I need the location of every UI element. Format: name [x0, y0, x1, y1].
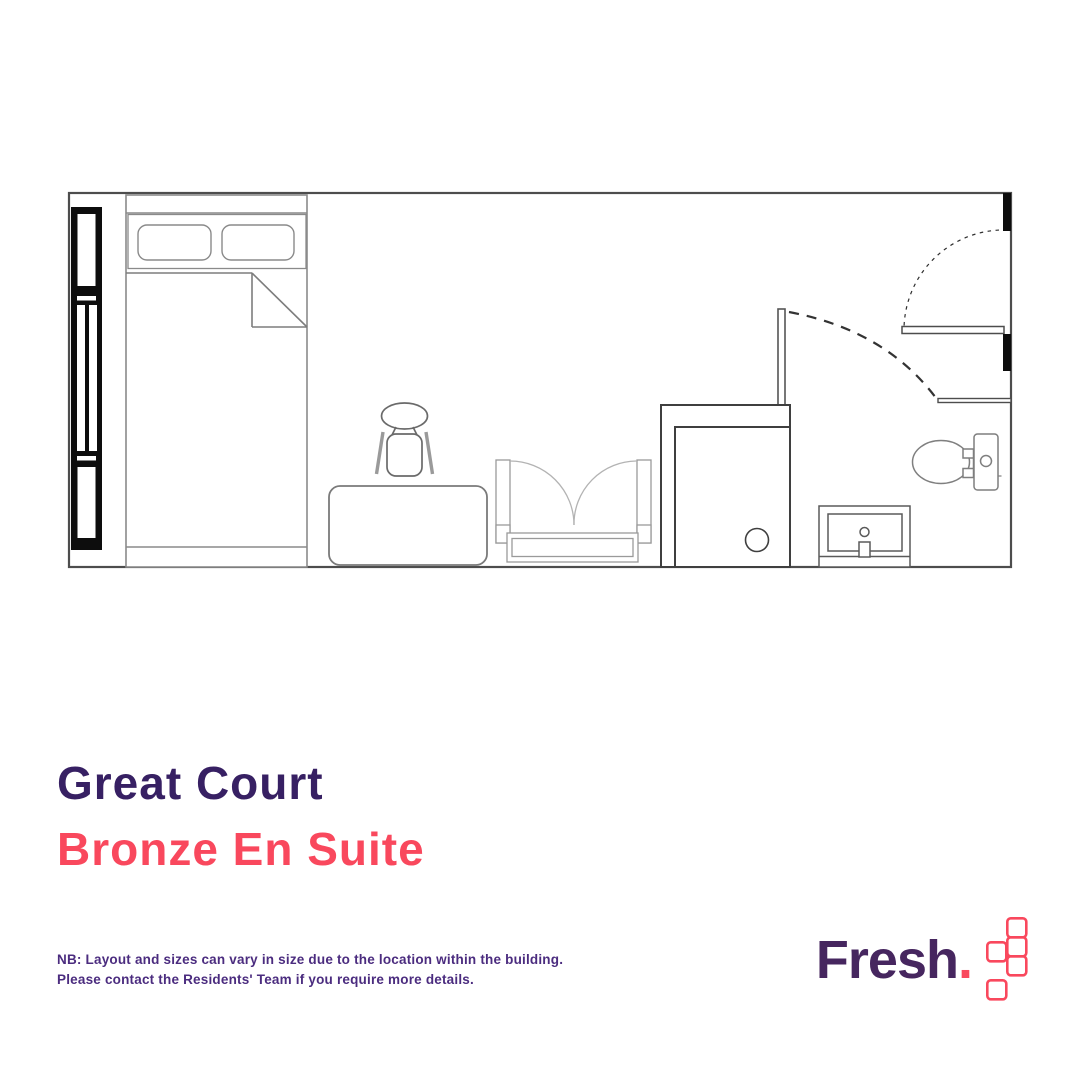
note-line-1: NB: Layout and sizes can vary in size du… [57, 952, 563, 967]
note-line-2: Please contact the Residents' Team if yo… [57, 972, 474, 987]
desk [329, 486, 487, 565]
toilet [913, 434, 1002, 490]
wash-basin [819, 506, 910, 567]
door-leaf [902, 327, 1004, 334]
brand-logo: Fresh. [816, 918, 1029, 1002]
door-jamb [1003, 334, 1011, 371]
bathroom-door [789, 312, 936, 398]
brand-mark-icon [985, 917, 1029, 1003]
toilet-bowl [913, 441, 970, 484]
window [71, 207, 102, 550]
disclaimer-note: NB: Layout and sizes can vary in size du… [57, 950, 563, 989]
toilet-cistern [974, 434, 998, 490]
page: Great Court Bronze En Suite NB: Layout a… [0, 0, 1080, 1080]
entrance-door [902, 193, 1011, 371]
shower [661, 405, 790, 567]
door-jamb [1003, 193, 1011, 231]
building-title: Great Court [57, 760, 324, 806]
desk-chair [377, 403, 433, 476]
brand-wordmark-dot: . [958, 930, 972, 990]
room-title: Bronze En Suite [57, 826, 425, 872]
brand-wordmark-text: Fresh [816, 930, 958, 990]
bed [126, 195, 307, 567]
brand-wordmark: Fresh. [816, 933, 972, 987]
wardrobe [496, 460, 651, 562]
